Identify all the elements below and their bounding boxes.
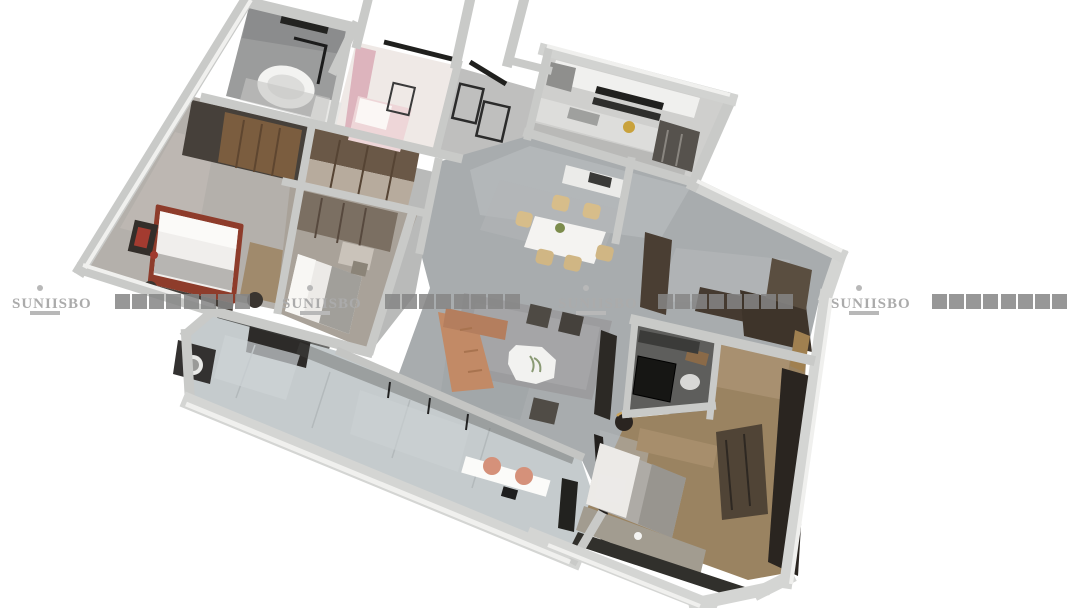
svg-text:SUNIISBO: SUNIISBO [558,296,638,312]
svg-text:SUNIISBO: SUNIISBO [12,296,92,312]
svg-text:SUNIISBO: SUNIISBO [282,296,362,312]
svg-text:SUNIISBO: SUNIISBO [831,296,911,312]
